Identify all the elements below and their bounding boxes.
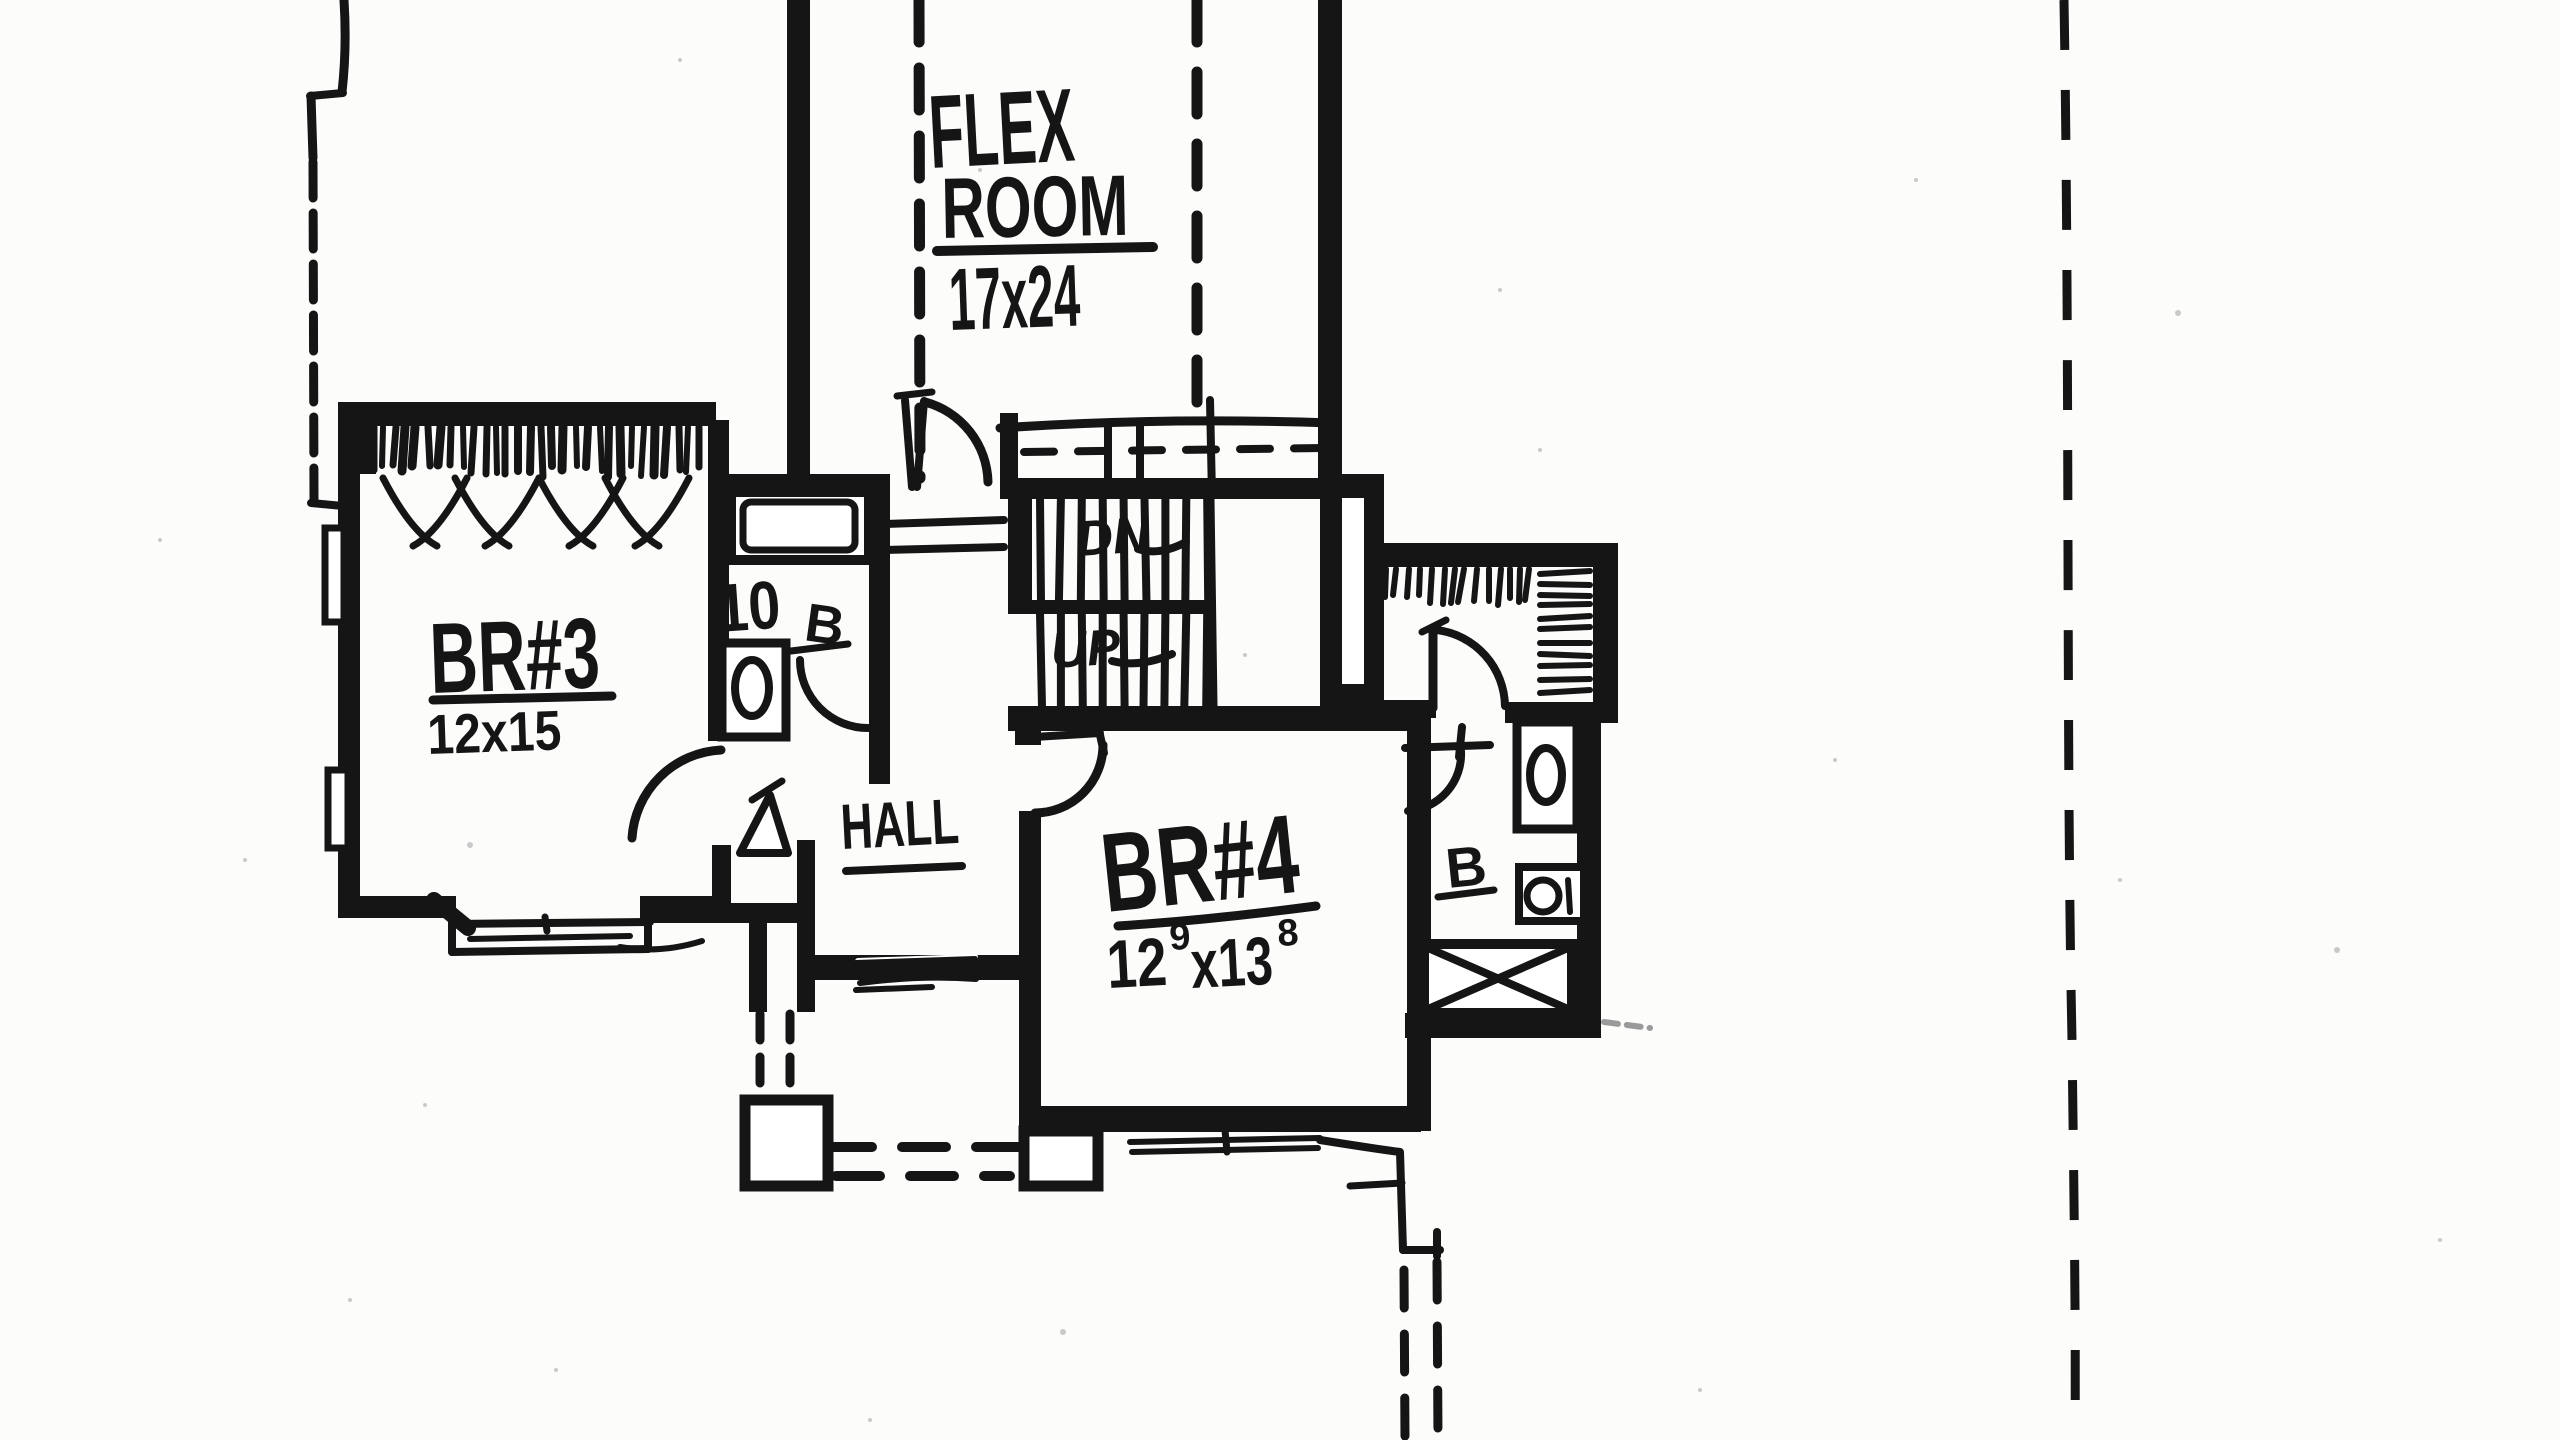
svg-text:12: 12 — [1105, 924, 1169, 1003]
svg-text:8: 8 — [1276, 912, 1299, 955]
svg-text:10: 10 — [714, 567, 783, 647]
svg-text:x13: x13 — [1189, 923, 1275, 1003]
svg-text:HALL: HALL — [839, 785, 961, 863]
svg-text:ROOM: ROOM — [941, 158, 1130, 257]
svg-text:17x24: 17x24 — [947, 245, 1081, 349]
svg-text:UP: UP — [1049, 618, 1123, 679]
svg-text:9: 9 — [1168, 916, 1191, 959]
svg-text:DN: DN — [1075, 506, 1152, 567]
svg-text:12x15: 12x15 — [426, 698, 562, 766]
